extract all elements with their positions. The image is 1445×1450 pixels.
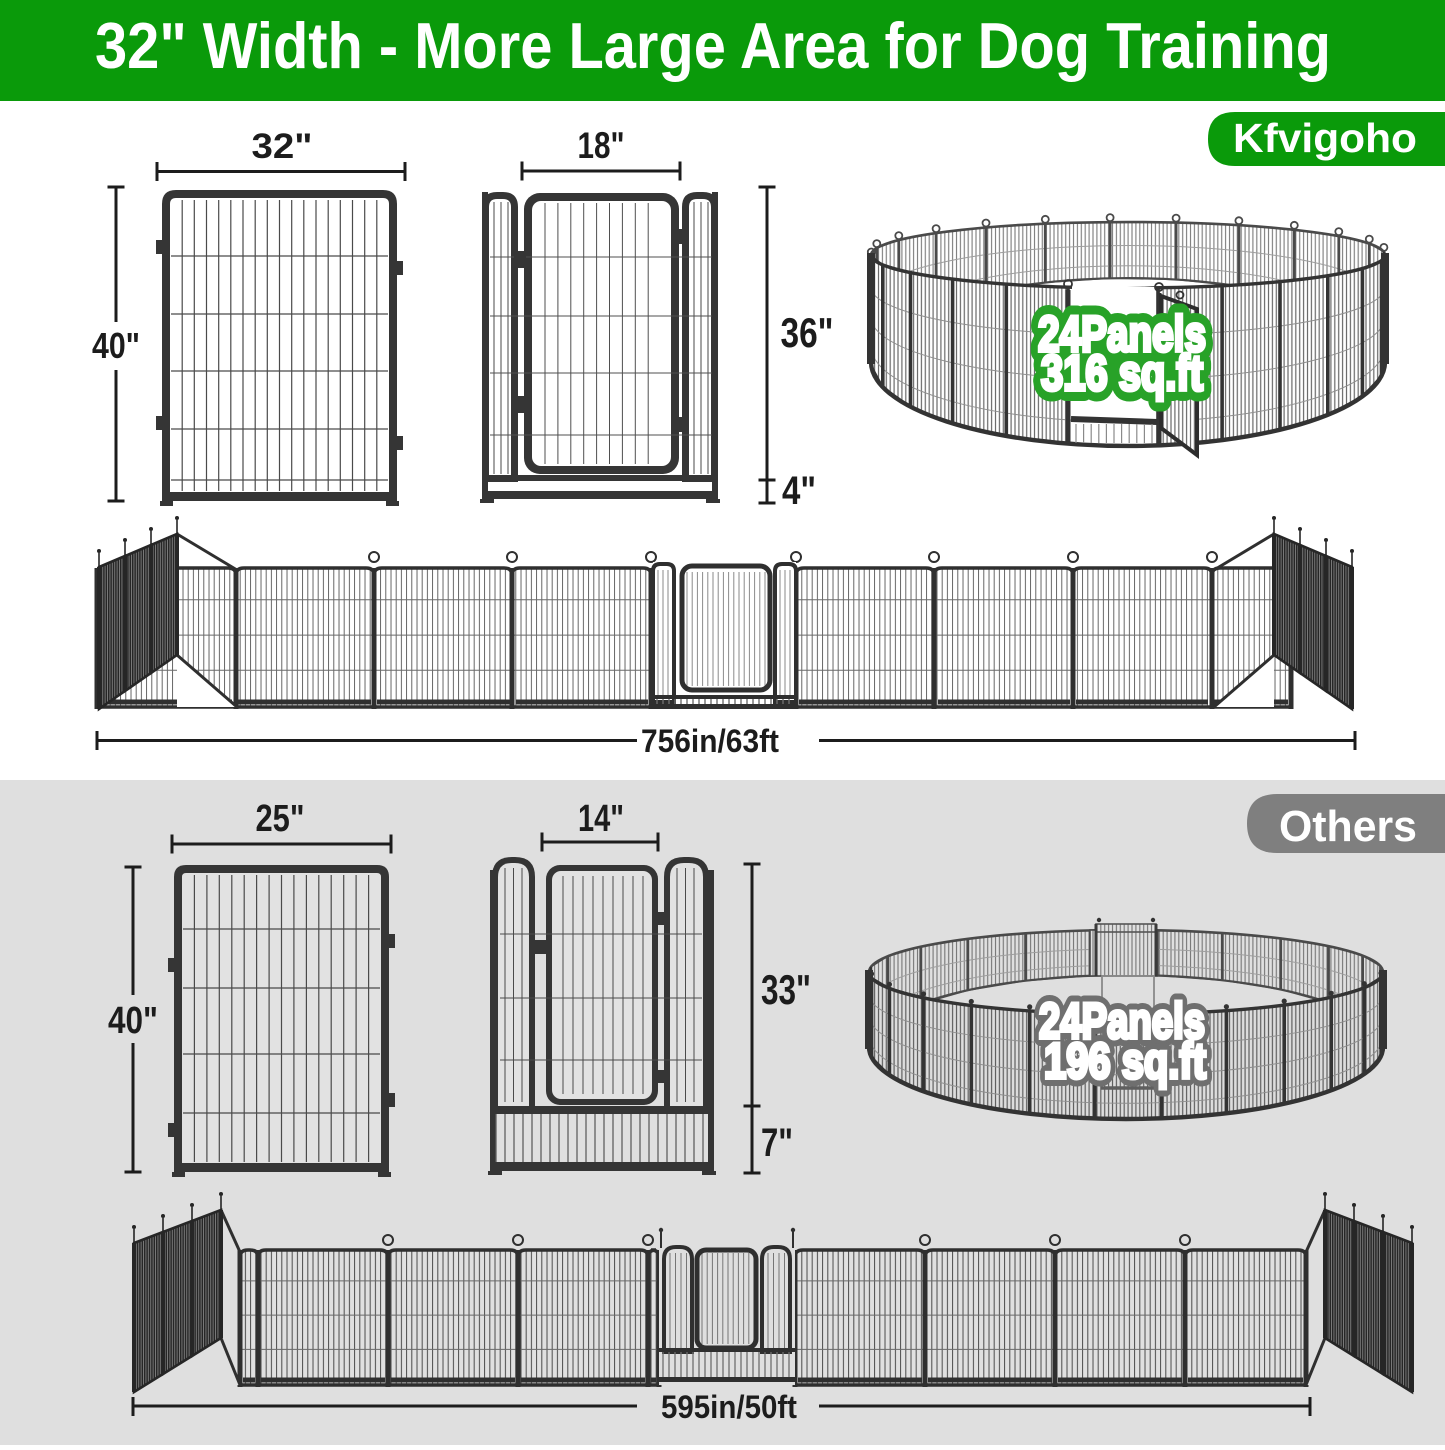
svg-text:Kfvigoho: Kfvigoho [1233,115,1417,161]
svg-text:595in/50ft: 595in/50ft [661,1389,797,1425]
svg-text:36": 36" [781,309,834,356]
svg-text:316 sq.ft: 316 sq.ft [1041,345,1203,401]
svg-text:14": 14" [578,798,624,840]
svg-text:40": 40" [108,1000,158,1042]
svg-text:32": 32" [252,127,313,166]
svg-text:Others: Others [1279,802,1417,851]
svg-text:25": 25" [256,798,305,840]
svg-text:196 sq.ft: 196 sq.ft [1044,1033,1206,1089]
svg-text:33": 33" [761,966,811,1013]
svg-text:18": 18" [578,125,625,166]
svg-text:40": 40" [92,325,140,366]
svg-text:756in/63ft: 756in/63ft [641,723,779,759]
svg-text:4": 4" [782,469,816,513]
svg-text:32" Width - More Large Area fo: 32" Width - More Large Area for Dog Trai… [95,9,1331,82]
svg-text:7": 7" [761,1121,793,1165]
